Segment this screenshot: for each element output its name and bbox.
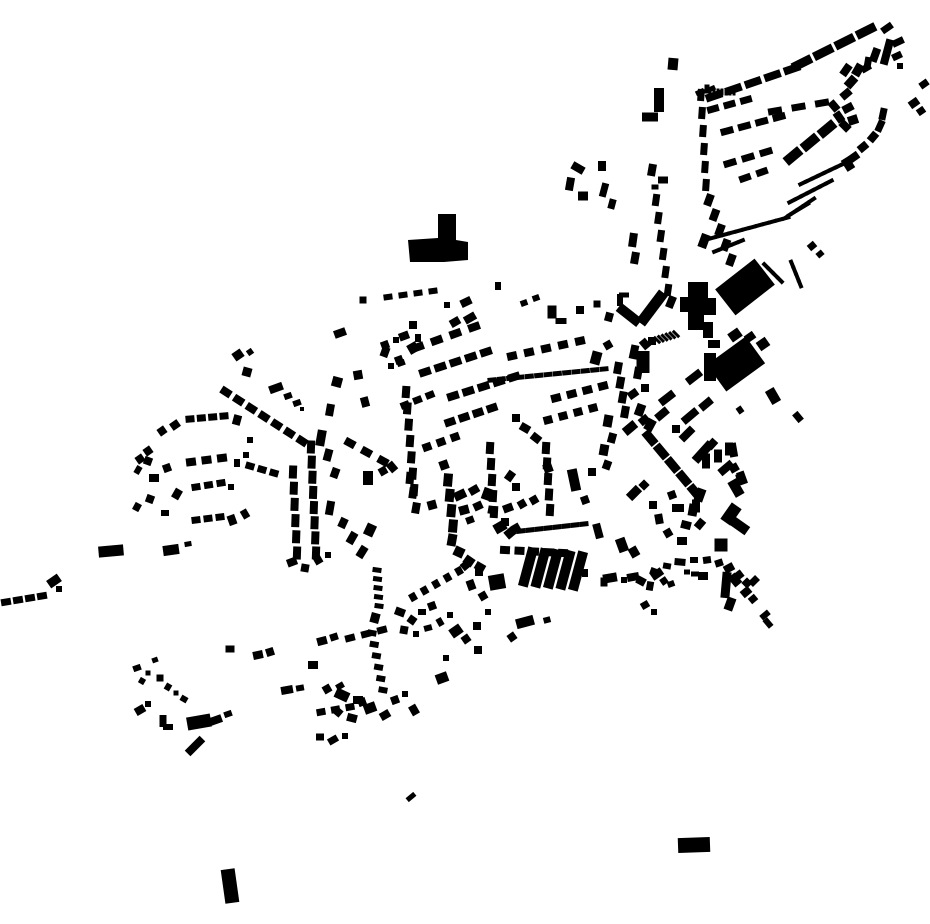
building (765, 387, 781, 405)
building (658, 177, 668, 184)
building (701, 161, 709, 173)
building (512, 414, 520, 422)
building (444, 416, 457, 427)
building (543, 372, 552, 378)
building (517, 499, 528, 510)
building (841, 102, 854, 114)
building (556, 318, 567, 324)
building (681, 407, 700, 425)
building (323, 448, 334, 462)
building (690, 557, 698, 563)
building (186, 714, 212, 731)
building (409, 321, 417, 329)
building (558, 549, 568, 558)
building (685, 369, 703, 386)
building (292, 530, 300, 543)
building (739, 95, 752, 105)
building (485, 609, 491, 615)
building (738, 173, 752, 184)
building (398, 331, 410, 342)
building (134, 704, 147, 716)
building (215, 513, 225, 521)
building (532, 294, 541, 302)
building (748, 594, 759, 605)
building (376, 625, 387, 634)
building (759, 147, 773, 157)
building (452, 545, 465, 558)
building (677, 537, 687, 545)
building (311, 531, 319, 544)
building (208, 413, 218, 421)
building (565, 177, 575, 191)
building (360, 396, 370, 408)
building (880, 22, 894, 35)
building (329, 632, 339, 641)
building (578, 192, 588, 201)
building (393, 337, 399, 343)
building (714, 558, 724, 567)
building (431, 579, 441, 589)
building (413, 631, 419, 637)
building (419, 585, 429, 595)
building (703, 556, 712, 564)
building (621, 577, 627, 583)
building (378, 466, 389, 477)
building (807, 196, 817, 204)
building (363, 471, 373, 485)
building (504, 470, 516, 483)
building (430, 335, 444, 347)
building (280, 685, 293, 695)
building (529, 495, 540, 506)
building (557, 340, 568, 350)
building (488, 474, 497, 486)
building (698, 572, 708, 580)
building (709, 208, 721, 222)
building (601, 578, 608, 587)
building (446, 390, 460, 401)
building (402, 691, 408, 697)
building (543, 548, 553, 557)
building (334, 688, 351, 703)
building (223, 710, 233, 718)
building (161, 510, 169, 516)
building (405, 472, 414, 485)
building (791, 54, 814, 71)
building (443, 473, 453, 487)
building (918, 79, 929, 90)
building (479, 346, 493, 357)
building (599, 182, 609, 197)
building (164, 682, 173, 691)
building (174, 691, 179, 696)
building (421, 442, 432, 453)
building (56, 586, 62, 592)
building (815, 249, 824, 258)
building (727, 327, 743, 342)
building (472, 500, 484, 511)
building (191, 516, 201, 524)
building (543, 415, 554, 425)
building (446, 504, 456, 518)
building (406, 614, 417, 625)
building (394, 607, 406, 618)
building (507, 371, 521, 382)
building (337, 517, 348, 529)
building (737, 121, 751, 131)
building (567, 468, 581, 492)
building (573, 407, 584, 417)
building (759, 609, 771, 620)
building (638, 479, 649, 490)
building (473, 622, 481, 630)
building (628, 545, 641, 558)
building (520, 299, 529, 307)
building (740, 586, 753, 599)
building (443, 655, 449, 661)
building (626, 485, 642, 501)
building (647, 163, 657, 176)
building (506, 351, 517, 361)
building (807, 241, 818, 252)
building (472, 407, 485, 418)
building (487, 505, 496, 514)
building (659, 576, 669, 586)
building (620, 405, 630, 418)
building (618, 391, 628, 404)
building (869, 47, 881, 63)
building (628, 233, 638, 248)
building (315, 429, 327, 446)
building (373, 585, 383, 591)
building (465, 515, 475, 524)
building (651, 609, 657, 615)
building (744, 76, 763, 89)
building (478, 591, 489, 602)
building (412, 395, 423, 405)
building (603, 414, 614, 427)
building (878, 107, 887, 120)
building (138, 677, 146, 685)
building (654, 88, 664, 112)
building (447, 533, 458, 546)
building (855, 22, 878, 39)
building (468, 484, 481, 496)
building (663, 562, 672, 569)
building (672, 425, 680, 433)
building (388, 363, 394, 369)
building (415, 334, 421, 342)
building (529, 547, 539, 556)
building (658, 390, 676, 407)
building (714, 450, 722, 463)
building (169, 419, 181, 431)
building (908, 97, 921, 109)
building (426, 499, 437, 510)
building (594, 301, 601, 308)
building (442, 572, 452, 582)
building (300, 407, 304, 411)
building (269, 468, 280, 477)
building (488, 573, 506, 591)
building (897, 63, 903, 69)
building (891, 36, 905, 47)
building (406, 792, 417, 802)
building (449, 432, 460, 443)
building (607, 432, 617, 444)
building (486, 442, 495, 454)
building (700, 143, 708, 155)
building (607, 198, 616, 209)
building (545, 488, 554, 500)
building (562, 370, 571, 376)
building (372, 567, 382, 573)
building (667, 58, 678, 71)
building (458, 504, 470, 515)
l-shaped-complex (408, 214, 468, 262)
building (661, 266, 670, 279)
building (692, 500, 700, 513)
building (171, 488, 183, 501)
building (327, 734, 339, 745)
building (544, 473, 553, 485)
building (316, 708, 326, 716)
building (720, 126, 734, 136)
building (371, 652, 381, 659)
building (640, 600, 650, 610)
building (36, 592, 47, 601)
building (755, 167, 769, 178)
building (403, 402, 412, 415)
building (588, 403, 599, 413)
building (369, 641, 379, 648)
building (344, 633, 355, 642)
building (162, 463, 172, 473)
building (630, 251, 640, 264)
building (408, 592, 418, 602)
building (296, 684, 305, 691)
building (374, 663, 384, 670)
building (435, 617, 444, 627)
building (796, 279, 803, 289)
building (433, 361, 447, 372)
building (592, 523, 604, 540)
building (448, 328, 462, 340)
building (553, 371, 562, 377)
building (570, 522, 579, 528)
building (447, 612, 453, 618)
building (353, 370, 363, 380)
building (684, 570, 690, 575)
building (453, 488, 468, 501)
building (345, 703, 355, 711)
building (98, 544, 124, 557)
building (407, 451, 416, 464)
building (325, 552, 331, 558)
building (245, 402, 259, 415)
building (506, 631, 517, 642)
building (833, 33, 856, 50)
building (316, 636, 328, 646)
building (534, 372, 543, 378)
building (737, 238, 746, 245)
building (667, 490, 677, 500)
building (674, 558, 686, 566)
building (374, 603, 384, 609)
building (523, 347, 534, 357)
building (435, 671, 450, 685)
building (406, 435, 415, 448)
building (399, 625, 408, 634)
building (257, 410, 271, 423)
building (664, 456, 681, 474)
building (342, 733, 348, 739)
building (654, 513, 664, 524)
building (184, 541, 192, 547)
building (581, 385, 593, 395)
building (540, 344, 551, 354)
building (408, 487, 417, 499)
building (445, 488, 455, 502)
building (379, 709, 392, 721)
building (459, 296, 472, 308)
building (703, 193, 715, 207)
building (404, 418, 413, 431)
building (290, 482, 298, 495)
building (369, 612, 380, 624)
building (534, 526, 543, 532)
building (145, 494, 155, 504)
building (839, 63, 852, 77)
building (151, 657, 158, 664)
building (411, 502, 421, 514)
building (355, 545, 368, 559)
building (232, 414, 242, 426)
building (204, 481, 214, 489)
building (622, 420, 639, 436)
building (857, 141, 870, 154)
building (292, 399, 302, 407)
building (310, 516, 318, 529)
building (916, 106, 927, 116)
building (402, 386, 411, 399)
building (597, 381, 609, 391)
building (652, 185, 659, 190)
building (0, 598, 11, 607)
building (824, 178, 835, 186)
building (566, 389, 578, 399)
building (717, 89, 720, 96)
building (418, 609, 426, 615)
building (316, 734, 324, 741)
building (543, 525, 552, 531)
building (360, 297, 367, 304)
building (307, 456, 315, 469)
building (474, 646, 482, 654)
building (576, 306, 584, 314)
building (654, 212, 663, 225)
building (599, 444, 610, 456)
building (815, 98, 830, 107)
building (589, 350, 602, 365)
building (543, 616, 551, 624)
building (548, 306, 557, 319)
building (300, 563, 309, 572)
building (800, 133, 821, 153)
building (325, 403, 335, 416)
building (571, 369, 580, 375)
building (333, 327, 347, 339)
building (232, 394, 246, 407)
building (792, 411, 804, 423)
building (219, 386, 233, 399)
building (383, 293, 393, 300)
building (891, 51, 903, 62)
building (486, 402, 499, 413)
building (754, 117, 768, 127)
building (502, 503, 514, 514)
building (637, 351, 650, 373)
building (346, 713, 358, 723)
building (427, 601, 437, 611)
building (179, 695, 188, 704)
building (245, 461, 256, 470)
building (343, 437, 356, 449)
building (561, 523, 570, 529)
building (525, 373, 534, 379)
building (723, 158, 737, 168)
building (425, 390, 436, 400)
building (812, 44, 835, 61)
building (530, 432, 543, 444)
building (691, 572, 699, 577)
building (500, 546, 510, 555)
building (702, 179, 710, 191)
building (733, 89, 736, 96)
building (627, 388, 640, 400)
building (672, 504, 684, 512)
building (702, 454, 710, 469)
building (290, 498, 298, 511)
building (663, 528, 674, 539)
building (435, 437, 446, 448)
building (581, 368, 590, 374)
building (291, 514, 299, 527)
building (697, 233, 710, 249)
building (619, 293, 629, 298)
building (525, 527, 534, 533)
building (243, 452, 249, 458)
building (221, 868, 240, 904)
building (874, 119, 885, 133)
building (599, 366, 608, 372)
building (458, 412, 471, 423)
building (678, 837, 711, 853)
building (646, 581, 654, 591)
building (512, 483, 520, 491)
building (331, 376, 343, 388)
building (487, 458, 496, 470)
building (680, 520, 692, 530)
building (374, 594, 384, 600)
building (146, 671, 151, 676)
building (322, 684, 333, 695)
building (163, 724, 173, 730)
building (699, 125, 707, 137)
building (449, 356, 463, 367)
building (706, 104, 719, 114)
building (444, 302, 450, 308)
